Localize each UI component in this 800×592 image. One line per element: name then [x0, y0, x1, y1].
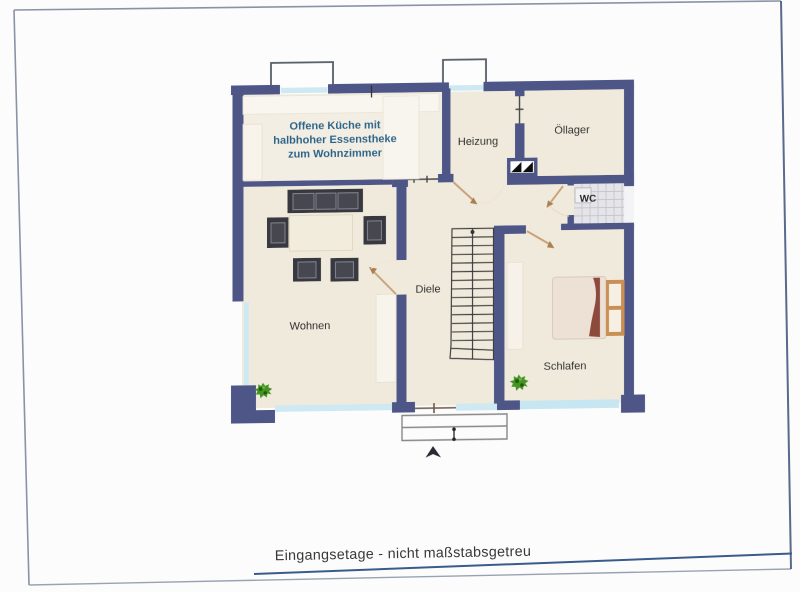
- svg-text:Schlafen: Schlafen: [544, 360, 587, 373]
- svg-text:Öllager: Öllager: [554, 124, 590, 137]
- svg-text:Wohnen: Wohnen: [290, 320, 331, 333]
- svg-text:Heizung: Heizung: [458, 136, 498, 149]
- svg-text:Offene Küche mit: Offene Küche mit: [289, 119, 380, 132]
- svg-text:zum Wohnzimmer: zum Wohnzimmer: [288, 147, 383, 160]
- svg-text:WC: WC: [580, 194, 597, 205]
- svg-text:halbhoher Essenstheke: halbhoher Essenstheke: [273, 133, 396, 147]
- svg-text:Diele: Diele: [415, 283, 440, 295]
